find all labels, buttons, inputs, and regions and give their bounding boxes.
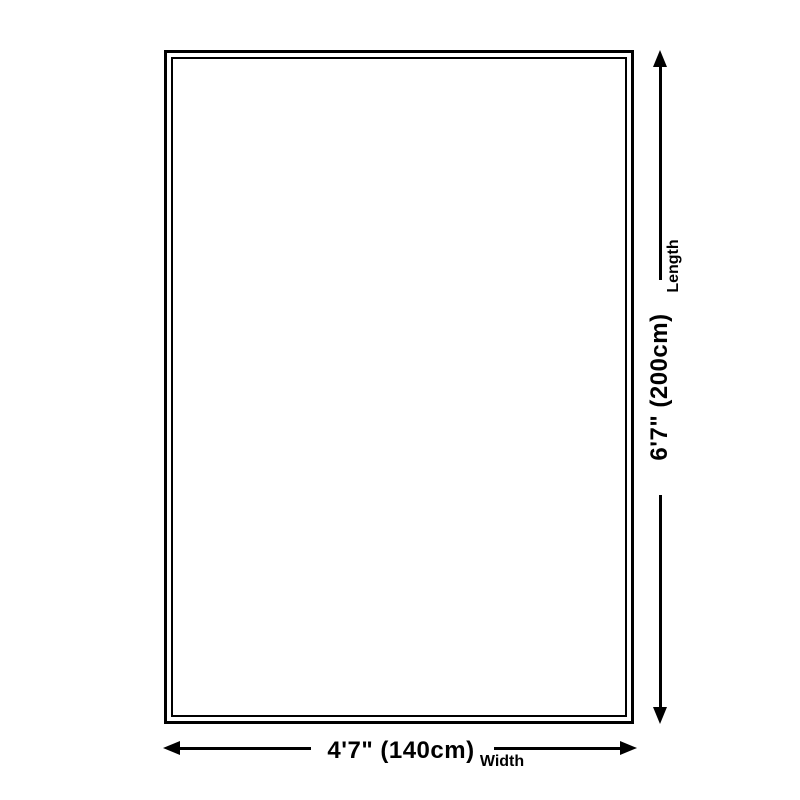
width-dimension: 4'7" (140cm) Width [163,734,637,778]
width-line-left [171,747,311,750]
width-label: Width [480,754,524,770]
length-line-bottom [659,495,662,710]
length-line-top [659,62,662,280]
rug-outline [164,50,634,724]
length-value: 6'7" (200cm) [648,307,672,466]
width-line-right [494,747,629,750]
arrow-down-icon [653,707,667,724]
width-value: 4'7" (140cm) [321,739,480,763]
rug-inner-outline [171,57,627,717]
dimension-diagram: 6'7" (200cm) Length 4'7" (140cm) Width [0,0,800,800]
length-label: Length [666,239,682,292]
arrow-right-icon [620,741,637,755]
length-dimension: 6'7" (200cm) Length [646,50,674,724]
